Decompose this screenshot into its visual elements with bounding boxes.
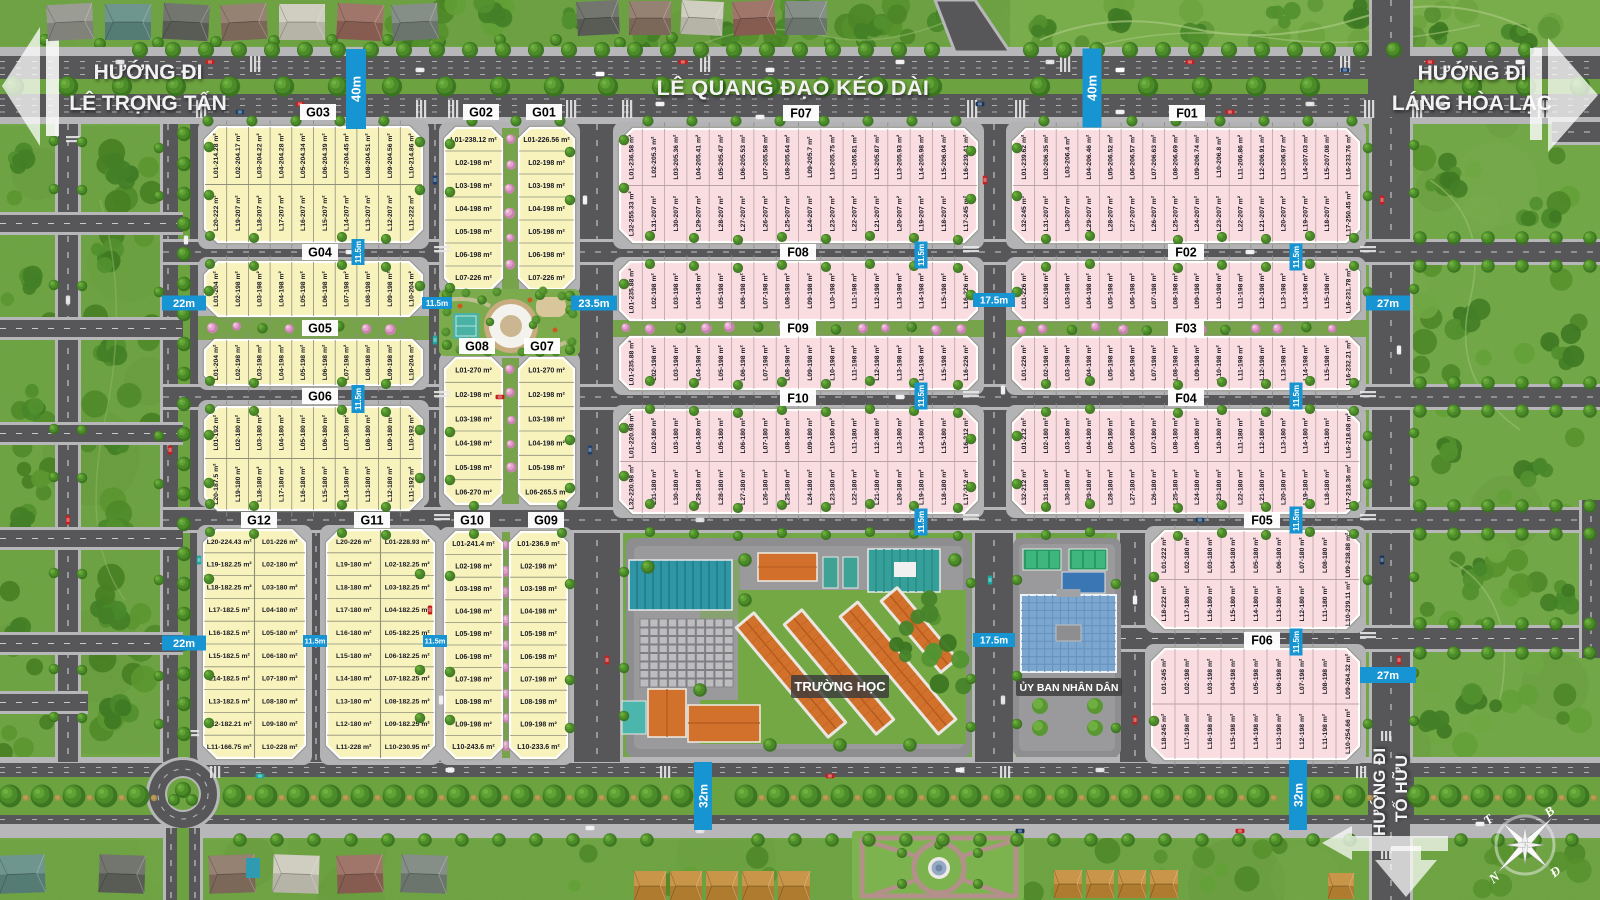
svg-text:L08-180 m²: L08-180 m² (1173, 417, 1180, 453)
svg-text:L04-180 m²: L04-180 m² (695, 417, 702, 453)
svg-text:L13-180 m²: L13-180 m² (1276, 585, 1283, 621)
svg-text:L05-198 m²: L05-198 m² (1108, 345, 1115, 381)
svg-text:L04-198 m²: L04-198 m² (455, 609, 492, 616)
svg-text:L10-205.75 m²: L10-205.75 m² (829, 134, 836, 180)
svg-text:L10-228 m²: L10-228 m² (262, 744, 298, 751)
svg-text:L04-180 m²: L04-180 m² (1086, 417, 1093, 453)
svg-text:L18-222 m²: L18-222 m² (1161, 585, 1168, 621)
svg-text:L09-198 m²: L09-198 m² (520, 722, 557, 729)
svg-text:L18-180 m²: L18-180 m² (257, 466, 264, 502)
svg-text:L02-198 m²: L02-198 m² (651, 273, 658, 309)
svg-text:L12-180 m²: L12-180 m² (1259, 417, 1266, 453)
svg-text:L11-192 m²: L11-192 m² (408, 466, 415, 502)
svg-text:L05-198 m²: L05-198 m² (455, 631, 492, 638)
svg-text:L03-198 m²: L03-198 m² (257, 344, 264, 380)
svg-text:L18-245 m²: L18-245 m² (1161, 713, 1168, 749)
svg-text:L12-207 m²: L12-207 m² (387, 195, 394, 231)
svg-text:L03-198 m²: L03-198 m² (673, 273, 680, 309)
svg-text:L10-198 m²: L10-198 m² (829, 345, 836, 381)
svg-text:G11: G11 (361, 514, 384, 528)
svg-text:L25-180 m²: L25-180 m² (785, 469, 792, 505)
svg-text:L06-198 m²: L06-198 m² (1129, 273, 1136, 309)
svg-text:L06-198 m²: L06-198 m² (528, 252, 565, 259)
svg-text:L22-180 m²: L22-180 m² (1237, 469, 1244, 505)
svg-text:L03-198 m²: L03-198 m² (455, 586, 492, 593)
svg-text:G03: G03 (306, 106, 330, 120)
svg-text:L18-182.25 m²: L18-182.25 m² (207, 584, 253, 591)
svg-text:L11-222 m²: L11-222 m² (408, 195, 415, 231)
svg-text:L21-207 m²: L21-207 m² (874, 195, 881, 231)
svg-text:L04-198 m²: L04-198 m² (278, 344, 285, 380)
svg-text:L05-180 m²: L05-180 m² (1108, 417, 1115, 453)
svg-text:L07-198 m²: L07-198 m² (1151, 273, 1158, 309)
svg-text:L06-270 m²: L06-270 m² (455, 489, 492, 496)
svg-text:L18-207 m²: L18-207 m² (1324, 195, 1331, 231)
svg-text:L09-180 m²: L09-180 m² (807, 417, 814, 453)
svg-text:L15-206.04 m²: L15-206.04 m² (941, 134, 948, 180)
svg-text:L03-206.4 m²: L03-206.4 m² (1064, 136, 1071, 178)
svg-text:L08-206.69 m²: L08-206.69 m² (1173, 134, 1180, 180)
svg-text:LÊ QUANG ĐẠO KÉO DÀI: LÊ QUANG ĐẠO KÉO DÀI (657, 75, 930, 100)
svg-text:11.5m: 11.5m (425, 637, 446, 646)
svg-text:L23-180 m²: L23-180 m² (1216, 469, 1223, 505)
svg-text:L19-207 m²: L19-207 m² (1302, 195, 1309, 231)
svg-text:L20-207 m²: L20-207 m² (896, 195, 903, 231)
svg-text:L01-226 m²: L01-226 m² (262, 539, 298, 546)
svg-text:L19-207 m²: L19-207 m² (919, 195, 926, 231)
svg-text:L07-204.45 m²: L07-204.45 m² (343, 133, 350, 179)
svg-text:L03-198 m²: L03-198 m² (257, 271, 264, 307)
svg-text:L02-205.3 m²: L02-205.3 m² (651, 136, 658, 178)
svg-text:L20-187.5 m²: L20-187.5 m² (213, 463, 220, 505)
svg-text:L21-180 m²: L21-180 m² (1259, 469, 1266, 505)
svg-text:L06-180 m²: L06-180 m² (740, 417, 747, 453)
svg-text:L09-198 m²: L09-198 m² (807, 345, 814, 381)
svg-text:L09-238.88 m²: L09-238.88 m² (1345, 532, 1352, 578)
svg-text:L17-198 m²: L17-198 m² (1184, 713, 1191, 749)
svg-text:L05-180 m²: L05-180 m² (718, 417, 725, 453)
svg-text:L16-180 m²: L16-180 m² (300, 466, 307, 502)
svg-text:L09-198 m²: L09-198 m² (1194, 345, 1201, 381)
svg-text:22m: 22m (173, 638, 195, 650)
svg-text:L07-205.58 m²: L07-205.58 m² (762, 134, 769, 180)
svg-text:L01-270 m²: L01-270 m² (528, 368, 565, 375)
svg-text:L28-207 m²: L28-207 m² (718, 195, 725, 231)
svg-text:L23-207 m²: L23-207 m² (829, 195, 836, 231)
svg-text:F08: F08 (787, 246, 809, 260)
svg-text:L07-198 m²: L07-198 m² (455, 676, 492, 683)
svg-text:L13-198 m²: L13-198 m² (1281, 345, 1288, 381)
svg-text:L06-180 m²: L06-180 m² (1129, 417, 1136, 453)
svg-text:L14-180 m²: L14-180 m² (336, 676, 372, 683)
svg-text:L02-198 m²: L02-198 m² (455, 160, 492, 167)
svg-text:L30-207 m²: L30-207 m² (673, 195, 680, 231)
svg-text:L06-198 m²: L06-198 m² (740, 273, 747, 309)
svg-text:L18-180 m²: L18-180 m² (336, 584, 372, 591)
svg-text:L21-207 m²: L21-207 m² (1259, 195, 1266, 231)
svg-text:L15-198 m²: L15-198 m² (1324, 273, 1331, 309)
svg-text:L04-180 m²: L04-180 m² (278, 414, 285, 450)
svg-text:F05: F05 (1251, 514, 1273, 528)
svg-text:L06-198 m²: L06-198 m² (455, 654, 492, 661)
svg-text:L09-204.56 m²: L09-204.56 m² (387, 133, 394, 179)
svg-text:F01: F01 (1176, 107, 1198, 121)
svg-text:L05-198 m²: L05-198 m² (520, 631, 557, 638)
svg-text:L13-180 m²: L13-180 m² (336, 698, 372, 705)
svg-text:L28-180 m²: L28-180 m² (718, 469, 725, 505)
svg-text:L04-198 m²: L04-198 m² (278, 271, 285, 307)
svg-text:L22-207 m²: L22-207 m² (1237, 195, 1244, 231)
svg-text:L13-198 m²: L13-198 m² (1276, 713, 1283, 749)
svg-text:L05-206.52 m²: L05-206.52 m² (1108, 134, 1115, 180)
svg-text:L08-204.51 m²: L08-204.51 m² (365, 133, 372, 179)
svg-text:L12-180 m²: L12-180 m² (336, 721, 372, 728)
svg-text:L07-198 m²: L07-198 m² (343, 271, 350, 307)
svg-text:L03-198 m²: L03-198 m² (1064, 273, 1071, 309)
svg-text:L10-230.95 m²: L10-230.95 m² (385, 744, 431, 751)
svg-text:L14-198 m²: L14-198 m² (1253, 713, 1260, 749)
svg-text:11.5m: 11.5m (1292, 246, 1301, 268)
svg-text:L03-180 m²: L03-180 m² (673, 417, 680, 453)
svg-text:L10-198 m²: L10-198 m² (829, 273, 836, 309)
svg-text:L07-180 m²: L07-180 m² (1151, 417, 1158, 453)
svg-text:L05-198 m²: L05-198 m² (455, 465, 492, 472)
svg-text:L11-198 m²: L11-198 m² (852, 273, 859, 309)
svg-text:L15-198 m²: L15-198 m² (1230, 713, 1237, 749)
svg-text:L12-180 m²: L12-180 m² (387, 466, 394, 502)
svg-text:L29-207 m²: L29-207 m² (695, 195, 702, 231)
svg-text:L24-180 m²: L24-180 m² (1194, 469, 1201, 505)
svg-text:G06: G06 (308, 390, 332, 404)
svg-text:L08-198 m²: L08-198 m² (1173, 273, 1180, 309)
svg-text:11.5m: 11.5m (426, 299, 448, 308)
svg-text:L04-198 m²: L04-198 m² (1086, 345, 1093, 381)
svg-text:L12-198 m²: L12-198 m² (1259, 345, 1266, 381)
svg-text:L06-265.5 m²: L06-265.5 m² (525, 489, 568, 496)
svg-text:L10-214.86 m²: L10-214.86 m² (408, 133, 415, 179)
svg-text:L13-198 m²: L13-198 m² (1281, 273, 1288, 309)
svg-text:L16-182.5 m²: L16-182.5 m² (209, 630, 251, 637)
svg-text:L23-180 m²: L23-180 m² (829, 469, 836, 505)
svg-text:L14-198 m²: L14-198 m² (919, 273, 926, 309)
svg-text:L11-205.81 m²: L11-205.81 m² (852, 134, 859, 179)
svg-text:L02-206.35 m²: L02-206.35 m² (1043, 134, 1050, 180)
svg-text:11.5m: 11.5m (917, 511, 926, 533)
svg-text:L07-198 m²: L07-198 m² (343, 344, 350, 380)
svg-text:17.5m: 17.5m (980, 636, 1008, 647)
svg-text:L10-243.6 m²: L10-243.6 m² (452, 744, 495, 751)
svg-text:L08-198 m²: L08-198 m² (365, 271, 372, 307)
svg-text:L05-198 m²: L05-198 m² (1253, 658, 1260, 694)
svg-text:L14-180 m²: L14-180 m² (343, 466, 350, 502)
svg-text:L02-198 m²: L02-198 m² (528, 160, 565, 167)
svg-text:L02-180 m²: L02-180 m² (1184, 537, 1191, 573)
svg-text:L05-204.34 m²: L05-204.34 m² (300, 133, 307, 179)
svg-text:L15-180 m²: L15-180 m² (322, 466, 329, 502)
svg-text:L02-198 m²: L02-198 m² (1043, 273, 1050, 309)
svg-text:L16-180 m²: L16-180 m² (336, 630, 372, 637)
svg-text:L10-192 m²: L10-192 m² (408, 414, 415, 450)
svg-text:L13-180 m²: L13-180 m² (365, 466, 372, 502)
svg-text:L02-198 m²: L02-198 m² (651, 345, 658, 381)
svg-text:L13-180 m²: L13-180 m² (896, 417, 903, 453)
svg-text:F03: F03 (1175, 322, 1197, 336)
svg-text:L12-205.87 m²: L12-205.87 m² (874, 134, 881, 180)
svg-text:27m: 27m (1377, 298, 1399, 310)
svg-text:L08-180 m²: L08-180 m² (262, 698, 298, 705)
svg-text:L01-236.9 m²: L01-236.9 m² (517, 541, 560, 548)
svg-text:L10-204 m²: L10-204 m² (408, 344, 415, 380)
svg-text:G02: G02 (469, 106, 493, 120)
svg-text:L10-180 m²: L10-180 m² (1216, 417, 1223, 453)
svg-text:L06-198 m²: L06-198 m² (520, 654, 557, 661)
svg-text:L25-207 m²: L25-207 m² (785, 195, 792, 231)
svg-text:L12-198 m²: L12-198 m² (874, 273, 881, 309)
svg-text:L15-198 m²: L15-198 m² (941, 273, 948, 309)
svg-text:L15-207.08 m²: L15-207.08 m² (1324, 134, 1331, 180)
svg-text:11.5m: 11.5m (1292, 509, 1301, 531)
svg-text:L03-198 m²: L03-198 m² (1207, 658, 1214, 694)
svg-text:L18-180 m²: L18-180 m² (941, 469, 948, 505)
svg-text:L01-235.88 m²: L01-235.88 m² (629, 268, 636, 314)
svg-text:L01-222 m²: L01-222 m² (1161, 537, 1168, 573)
svg-text:L04-206.46 m²: L04-206.46 m² (1086, 134, 1093, 180)
svg-text:L20-180 m²: L20-180 m² (1281, 469, 1288, 505)
svg-text:L09-205.7 m²: L09-205.7 m² (807, 136, 814, 178)
svg-text:L08-180 m²: L08-180 m² (1322, 537, 1329, 573)
svg-text:11.5m: 11.5m (1292, 631, 1301, 653)
svg-text:L16-233.76 m²: L16-233.76 m² (1346, 134, 1353, 180)
svg-text:L13-206.97 m²: L13-206.97 m² (1281, 134, 1288, 180)
svg-text:L13-182.5 m²: L13-182.5 m² (209, 698, 251, 705)
svg-text:L20-222 m²: L20-222 m² (213, 195, 220, 231)
svg-text:17.5m: 17.5m (980, 296, 1008, 307)
svg-text:L09-180 m²: L09-180 m² (262, 721, 298, 728)
svg-text:L07-198 m²: L07-198 m² (762, 273, 769, 309)
svg-text:L10-254.66 m²: L10-254.66 m² (1345, 708, 1352, 754)
svg-text:L14-198 m²: L14-198 m² (1302, 345, 1309, 381)
svg-text:L14-207 m²: L14-207 m² (343, 195, 350, 231)
svg-text:L20-180 m²: L20-180 m² (896, 469, 903, 505)
svg-text:F10: F10 (787, 392, 809, 406)
svg-text:L14-207.03 m²: L14-207.03 m² (1302, 134, 1309, 180)
svg-text:L29-180 m²: L29-180 m² (695, 469, 702, 505)
svg-text:L09-206.74 m²: L09-206.74 m² (1194, 134, 1201, 180)
svg-text:L06-198 m²: L06-198 m² (322, 344, 329, 380)
svg-text:L03-198 m²: L03-198 m² (520, 586, 557, 593)
svg-text:L32-245 m²: L32-245 m² (1021, 195, 1028, 231)
svg-text:L16-218.08 m²: L16-218.08 m² (1346, 413, 1353, 459)
svg-text:L17-182.5 m²: L17-182.5 m² (209, 607, 251, 614)
svg-text:F04: F04 (1175, 392, 1197, 406)
svg-text:L03-198 m²: L03-198 m² (673, 345, 680, 381)
svg-text:HƯỚNG ĐI: HƯỚNG ĐI (94, 60, 203, 84)
svg-text:L14-180 m²: L14-180 m² (1302, 417, 1309, 453)
svg-text:L18-180 m²: L18-180 m² (1324, 469, 1331, 505)
svg-text:L01-228.93 m²: L01-228.93 m² (385, 539, 431, 546)
svg-text:L04-198 m²: L04-198 m² (528, 441, 565, 448)
svg-text:L09-198 m²: L09-198 m² (807, 273, 814, 309)
svg-text:22m: 22m (173, 298, 195, 310)
svg-text:L30-207 m²: L30-207 m² (1064, 195, 1071, 231)
svg-text:L15-207 m²: L15-207 m² (322, 195, 329, 231)
svg-text:L13-198 m²: L13-198 m² (896, 273, 903, 309)
svg-text:L11-166.75 m²: L11-166.75 m² (207, 744, 252, 751)
svg-text:L32-220.98 m²: L32-220.98 m² (629, 464, 636, 510)
svg-text:L11-198 m²: L11-198 m² (852, 345, 859, 381)
svg-text:L03-180 m²: L03-180 m² (1064, 417, 1071, 453)
svg-text:L06-180 m²: L06-180 m² (322, 414, 329, 450)
svg-text:L06-182.25 m²: L06-182.25 m² (385, 653, 431, 660)
svg-text:L11-228 m²: L11-228 m² (336, 744, 372, 751)
svg-text:11.5m: 11.5m (917, 385, 926, 407)
svg-text:L01-235.88 m²: L01-235.88 m² (629, 340, 636, 386)
svg-text:L05-180 m²: L05-180 m² (1253, 537, 1260, 573)
svg-text:L09-264.32 m²: L09-264.32 m² (1345, 653, 1352, 699)
svg-text:L12-180 m²: L12-180 m² (1299, 585, 1306, 621)
svg-text:L01-204 m²: L01-204 m² (213, 344, 220, 380)
svg-text:L01-220.98 m²: L01-220.98 m² (629, 413, 636, 459)
svg-text:L01-239.62 m²: L01-239.62 m² (1021, 134, 1028, 180)
svg-text:11.5m: 11.5m (305, 637, 326, 646)
svg-text:11.5m: 11.5m (917, 244, 926, 266)
svg-text:L15-180 m²: L15-180 m² (336, 653, 372, 660)
svg-text:L32-212 m²: L32-212 m² (1021, 469, 1028, 505)
svg-text:L07-226 m²: L07-226 m² (455, 275, 492, 282)
svg-text:L09-182.25 m²: L09-182.25 m² (385, 721, 431, 728)
svg-text:L03-198 m²: L03-198 m² (1064, 345, 1071, 381)
svg-text:L06-198 m²: L06-198 m² (322, 271, 329, 307)
svg-text:L16-198 m²: L16-198 m² (1207, 713, 1214, 749)
svg-text:L01-214.28 m²: L01-214.28 m² (213, 133, 220, 179)
svg-text:L02-180 m²: L02-180 m² (235, 414, 242, 450)
svg-text:L15-182.5 m²: L15-182.5 m² (209, 653, 251, 660)
svg-text:L19-180 m²: L19-180 m² (336, 562, 372, 569)
svg-text:L26-207 m²: L26-207 m² (762, 195, 769, 231)
svg-text:L10-204 m²: L10-204 m² (408, 271, 415, 307)
svg-text:F07: F07 (790, 107, 812, 121)
svg-text:L03-180 m²: L03-180 m² (257, 414, 264, 450)
svg-text:L02-182.25 m²: L02-182.25 m² (385, 562, 431, 569)
svg-text:L11-198 m²: L11-198 m² (1237, 273, 1244, 309)
svg-text:TỐ HỮU: TỐ HỮU (1391, 755, 1411, 822)
svg-text:L02-198 m²: L02-198 m² (528, 392, 565, 399)
svg-text:L14-198 m²: L14-198 m² (919, 345, 926, 381)
svg-text:G01: G01 (532, 106, 556, 120)
svg-text:G12: G12 (247, 514, 271, 528)
svg-text:HƯỚNG ĐI: HƯỚNG ĐI (1370, 748, 1389, 836)
svg-text:L19-182.25 m²: L19-182.25 m² (207, 562, 253, 569)
svg-text:11.5m: 11.5m (1292, 385, 1301, 407)
svg-text:L10-198 m²: L10-198 m² (1216, 273, 1223, 309)
svg-text:11.5m: 11.5m (354, 388, 363, 410)
svg-text:L20-226 m²: L20-226 m² (336, 539, 372, 546)
svg-text:40m: 40m (349, 76, 364, 102)
svg-text:L05-198 m²: L05-198 m² (300, 344, 307, 380)
svg-text:LÊ TRỌNG TẤN: LÊ TRỌNG TẤN (69, 91, 227, 115)
svg-text:L03-198 m²: L03-198 m² (528, 416, 565, 423)
svg-text:L07-180 m²: L07-180 m² (762, 417, 769, 453)
svg-text:L12-198 m²: L12-198 m² (1299, 713, 1306, 749)
svg-text:L06-204.39 m²: L06-204.39 m² (322, 133, 329, 179)
svg-text:L10-198 m²: L10-198 m² (1216, 345, 1223, 381)
svg-text:L13-180 m²: L13-180 m² (1281, 417, 1288, 453)
svg-text:L20-224.43 m²: L20-224.43 m² (207, 539, 253, 546)
svg-text:L17-180 m²: L17-180 m² (336, 607, 372, 614)
svg-text:L21-180 m²: L21-180 m² (874, 469, 881, 505)
svg-text:L06-198 m²: L06-198 m² (455, 252, 492, 259)
svg-text:L08-180 m²: L08-180 m² (785, 417, 792, 453)
svg-text:L12-180 m²: L12-180 m² (874, 417, 881, 453)
svg-text:L04-180 m²: L04-180 m² (262, 607, 298, 614)
svg-text:G09: G09 (534, 514, 558, 528)
svg-text:L07-180 m²: L07-180 m² (343, 414, 350, 450)
svg-text:L19-180 m²: L19-180 m² (919, 469, 926, 505)
svg-text:L04-180 m²: L04-180 m² (1230, 537, 1237, 573)
svg-text:LÁNG HÒA LẠC: LÁNG HÒA LẠC (1392, 91, 1552, 115)
svg-text:L15-180 m²: L15-180 m² (1230, 585, 1237, 621)
svg-text:L09-198 m²: L09-198 m² (1194, 273, 1201, 309)
svg-text:L17-207 m²: L17-207 m² (278, 195, 285, 231)
svg-text:L08-198 m²: L08-198 m² (785, 345, 792, 381)
svg-text:L04-198 m²: L04-198 m² (528, 206, 565, 213)
svg-text:L11-180 m²: L11-180 m² (1237, 417, 1244, 453)
svg-text:L09-180 m²: L09-180 m² (1194, 417, 1201, 453)
svg-text:L27-207 m²: L27-207 m² (1129, 195, 1136, 231)
svg-text:G05: G05 (308, 322, 332, 336)
svg-text:L06-180 m²: L06-180 m² (1276, 537, 1283, 573)
svg-text:L30-180 m²: L30-180 m² (673, 469, 680, 505)
svg-text:L01-204 m²: L01-204 m² (213, 271, 220, 307)
svg-text:L14-182.5 m²: L14-182.5 m² (209, 676, 251, 683)
svg-text:L05-198 m²: L05-198 m² (1108, 273, 1115, 309)
svg-text:L02-198 m²: L02-198 m² (235, 344, 242, 380)
svg-text:L01-192 m²: L01-192 m² (213, 414, 220, 450)
svg-text:L09-180 m²: L09-180 m² (387, 414, 394, 450)
svg-text:L04-198 m²: L04-198 m² (695, 273, 702, 309)
svg-text:L03-198 m²: L03-198 m² (455, 416, 492, 423)
svg-text:L05-198 m²: L05-198 m² (718, 273, 725, 309)
svg-text:L02-198 m²: L02-198 m² (455, 392, 492, 399)
svg-text:L01-226 m²: L01-226 m² (1021, 273, 1028, 309)
svg-text:G04: G04 (308, 246, 332, 260)
svg-text:G10: G10 (460, 514, 484, 528)
svg-text:L08-198 m²: L08-198 m² (365, 344, 372, 380)
svg-text:L31-180 m²: L31-180 m² (1043, 469, 1050, 505)
svg-text:L12-198 m²: L12-198 m² (1259, 273, 1266, 309)
svg-text:L08-198 m²: L08-198 m² (455, 699, 492, 706)
svg-text:L15-198 m²: L15-198 m² (941, 345, 948, 381)
svg-text:L07-180 m²: L07-180 m² (262, 676, 298, 683)
svg-text:L02-198 m²: L02-198 m² (1043, 345, 1050, 381)
svg-text:L04-198 m²: L04-198 m² (520, 609, 557, 616)
svg-text:L10-180 m²: L10-180 m² (829, 417, 836, 453)
svg-text:L27-180 m²: L27-180 m² (740, 469, 747, 505)
svg-text:ỦY BAN NHÂN DÂN: ỦY BAN NHÂN DÂN (1020, 681, 1119, 694)
svg-text:L28-180 m²: L28-180 m² (1108, 469, 1115, 505)
svg-text:L31-207 m²: L31-207 m² (1043, 195, 1050, 231)
svg-text:L09-198 m²: L09-198 m² (387, 271, 394, 307)
svg-text:L14-198 m²: L14-198 m² (1302, 273, 1309, 309)
svg-text:23.5m: 23.5m (578, 298, 609, 310)
svg-text:L01-238.12 m²: L01-238.12 m² (450, 137, 497, 144)
svg-text:L05-198 m²: L05-198 m² (300, 271, 307, 307)
svg-text:L01-226 m²: L01-226 m² (1021, 345, 1028, 381)
svg-text:L10-233.6 m²: L10-233.6 m² (517, 744, 560, 751)
svg-text:L08-182.25 m²: L08-182.25 m² (385, 698, 431, 705)
svg-text:L15-180 m²: L15-180 m² (941, 417, 948, 453)
svg-text:L22-180 m²: L22-180 m² (852, 469, 859, 505)
